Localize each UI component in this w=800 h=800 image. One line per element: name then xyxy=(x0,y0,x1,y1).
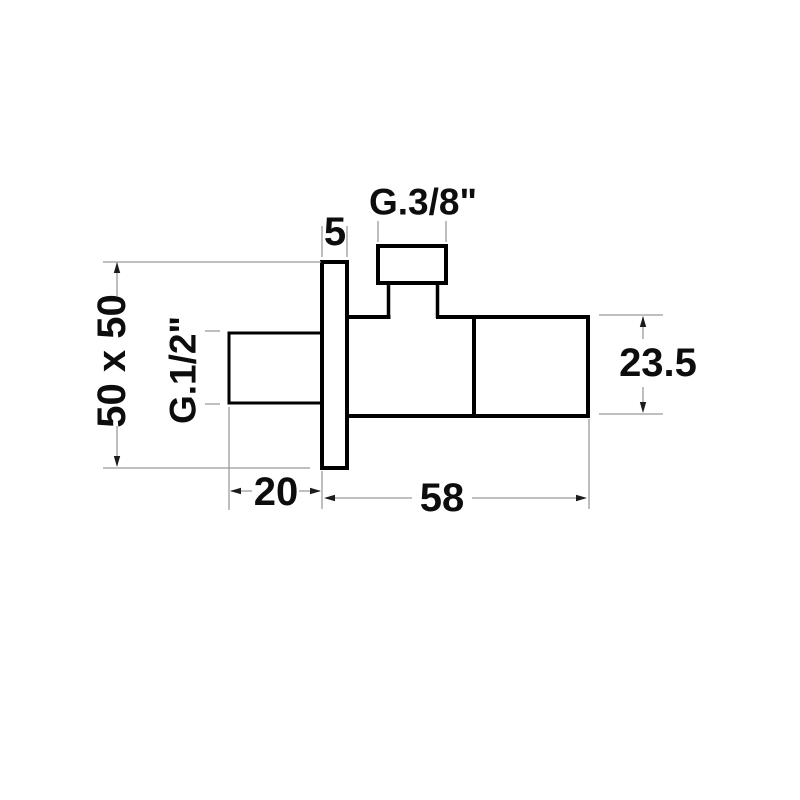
inlet-length-label: 20 xyxy=(254,470,299,514)
inlet-pipe-thread xyxy=(229,333,322,403)
angle-valve-technical-drawing: G.3/8" 5 50 x 50 G.1/2" 20 58 23.5 xyxy=(0,0,800,800)
body-length-label: 58 xyxy=(420,476,465,520)
outlet-stem xyxy=(389,283,438,318)
body-height-label: 23.5 xyxy=(619,341,697,385)
top-thread-label: G.3/8" xyxy=(369,182,477,223)
outlet-thread xyxy=(378,246,446,283)
valve-body-right xyxy=(474,317,588,416)
stem-body-opening xyxy=(391,315,437,321)
inlet-thread-label: G.1/2" xyxy=(163,316,204,424)
wall-plate xyxy=(322,262,347,468)
plate-thickness-label: 5 xyxy=(324,210,346,254)
valve-object xyxy=(229,246,588,468)
drawing-canvas: G.3/8" 5 50 x 50 G.1/2" 20 58 23.5 xyxy=(0,0,800,800)
plate-size-label: 50 x 50 xyxy=(90,294,134,427)
valve-body-left xyxy=(347,317,474,416)
